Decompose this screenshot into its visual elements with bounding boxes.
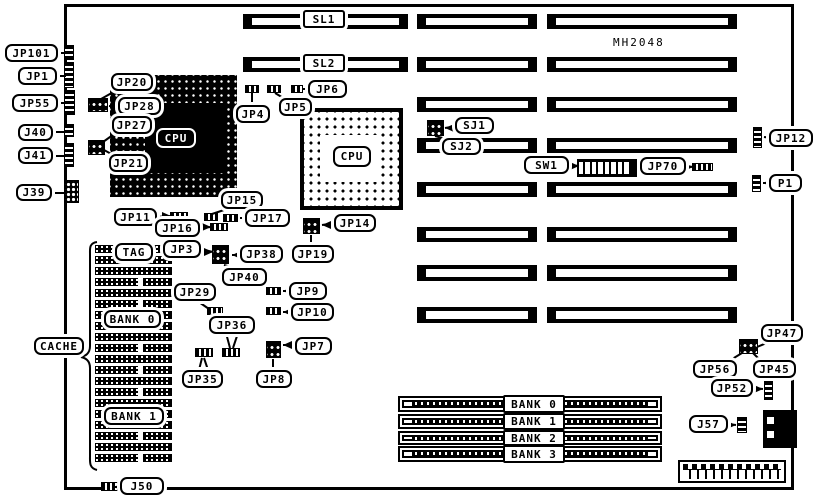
jp9-label: JP9 (289, 282, 327, 300)
jp10-jumper (266, 307, 281, 315)
jp56-label: JP56 (693, 360, 737, 378)
jp3-label: JP3 (163, 240, 201, 258)
jp7-label: JP7 (295, 337, 332, 355)
jp38-label: JP38 (240, 245, 283, 263)
slot-row8-right (547, 307, 737, 323)
jp12-label: JP12 (769, 129, 813, 147)
jp5-jumper (267, 85, 281, 93)
jp16-label: JP16 (155, 219, 200, 237)
slot-row8-mid (417, 307, 537, 323)
cache-chip-row (95, 399, 172, 407)
jp70-jumper (692, 163, 713, 171)
simm-latch-icon (646, 418, 658, 425)
jp15-jumper (204, 213, 218, 221)
simm-latch-icon (646, 450, 658, 458)
slot-row3-right (547, 97, 737, 112)
j50-jumper (101, 482, 118, 491)
sj1-label: SJ1 (455, 117, 494, 134)
jp47-label: JP47 (761, 324, 803, 342)
cache-chip-row (95, 432, 172, 440)
simm-latch-icon (402, 400, 414, 408)
jp27-jp21-jumper (88, 140, 105, 155)
jp4-jumper (245, 85, 259, 93)
cache-chip-row (95, 344, 172, 352)
jp9-jumper (266, 287, 281, 295)
cache-chip-row (95, 388, 172, 396)
cache-chip-rows (95, 245, 172, 469)
simm-bank0-label: BANK 0 (503, 395, 565, 413)
jp55-label: JP55 (12, 94, 58, 112)
jp17-label: JP17 (245, 209, 290, 227)
cache-bank0-label: BANK 0 (104, 310, 161, 328)
sl1-label: SL1 (303, 10, 345, 28)
jp101-connector (64, 45, 74, 60)
cpu-socket-1-label: CPU (156, 128, 196, 148)
jp1-connector (64, 62, 74, 88)
jp47-jp56-jp45-jumper (739, 339, 758, 354)
jp45-label: JP45 (753, 360, 796, 378)
cpu-socket-2-label: CPU (333, 146, 371, 167)
slot-row3-mid (417, 97, 537, 112)
jp40-label: JP40 (222, 268, 267, 286)
jp101-label: JP101 (5, 44, 58, 62)
jp16-jumper (210, 223, 228, 231)
sj1-sj2-jumper (427, 120, 444, 136)
jp3-jp38-jp40-jumper (212, 245, 229, 264)
simm-socket-bank0: BANK 0 (398, 396, 662, 412)
jp6-label: JP6 (308, 80, 347, 98)
slot-row4-right (547, 138, 737, 153)
cache-chip-row (95, 355, 172, 363)
simm-socket-bank1: BANK 1 (398, 414, 662, 429)
jp10-label: JP10 (291, 303, 334, 321)
jp8-label: JP8 (256, 370, 292, 388)
cache-chip-row (95, 366, 172, 374)
jp1-label: JP1 (18, 67, 57, 85)
j40-label: J40 (18, 124, 53, 141)
jp6-jumper (291, 85, 303, 93)
j39-label: J39 (16, 184, 52, 201)
jp36-jumper (222, 348, 240, 357)
cache-chip-row (95, 289, 172, 297)
motherboard-diagram: MH2048 CPU CPU BANK 0 BANK 1 BANK 2 (0, 0, 819, 502)
simm-latch-icon (646, 435, 658, 441)
jp20-label: JP20 (111, 73, 153, 91)
slot-row2-mid (417, 57, 537, 72)
cache-chip-row (95, 454, 172, 462)
power-connector (678, 460, 786, 483)
sw1-label: SW1 (524, 156, 569, 174)
p1-label: P1 (769, 174, 802, 192)
jp14-label: JP14 (334, 214, 376, 232)
simm-bank2-label: BANK 2 (503, 430, 565, 446)
sj2-label: SJ2 (442, 138, 481, 155)
slot-row7-right (547, 265, 737, 281)
jp35-jumper (195, 348, 213, 357)
jp15-label: JP15 (221, 191, 263, 209)
j41-connector (64, 143, 74, 167)
cache-chip-row (95, 377, 172, 385)
simm-latch-icon (402, 435, 414, 441)
jp12-connector (753, 127, 762, 148)
simm-latch-icon (402, 418, 414, 425)
cache-label: CACHE (34, 337, 84, 355)
slot-row6-mid (417, 227, 537, 242)
j50-label: J50 (120, 477, 164, 495)
slot-row2-right (547, 57, 737, 72)
board-model-text: MH2048 (613, 36, 665, 49)
jp36-label: JP36 (209, 316, 255, 334)
jp7-jp8-jumper (266, 341, 281, 358)
simm-latch-icon (402, 450, 414, 458)
slot-row1-mid (417, 14, 537, 29)
cache-tag-label: TAG (115, 243, 153, 261)
j57-label: J57 (689, 415, 728, 433)
jp29-jumper (207, 307, 223, 315)
jp27-label: JP27 (112, 116, 152, 134)
cache-chip-row (95, 333, 172, 341)
j40-connector (64, 124, 74, 137)
jp5-label: JP5 (279, 98, 312, 116)
sl2-label: SL2 (303, 54, 345, 72)
slot-row5-mid (417, 182, 537, 197)
jp55-connector (64, 90, 75, 115)
jp14-jp19-jumper (303, 218, 320, 234)
cache-chip-row (95, 278, 172, 286)
jp52-jumper (764, 381, 773, 400)
keyboard-connector (763, 410, 797, 448)
slot-row5-right (547, 182, 737, 197)
j39-connector (64, 180, 79, 203)
cache-bank1-label: BANK 1 (104, 407, 164, 425)
sw1-dip-switch (577, 159, 637, 177)
jp20-jp28-jumper (88, 98, 108, 112)
j41-label: J41 (18, 147, 53, 164)
cache-chip-row (95, 300, 172, 308)
slot-row6-right (547, 227, 737, 242)
simm-latch-icon (646, 400, 658, 408)
jp29-label: JP29 (174, 283, 216, 301)
jp17-jumper (223, 214, 238, 222)
jp28-label: JP28 (118, 97, 161, 115)
simm-socket-bank2: BANK 2 (398, 431, 662, 445)
j57-jumper (737, 417, 747, 433)
jp19-label: JP19 (292, 245, 334, 263)
slot-row7-mid (417, 265, 537, 281)
jp35-label: JP35 (182, 370, 223, 388)
cache-chip-row (95, 267, 172, 275)
jp21-label: JP21 (109, 154, 148, 172)
cache-chip-row (95, 443, 172, 451)
simm-bank3-label: BANK 3 (503, 445, 565, 463)
slot-row1-right (547, 14, 737, 29)
jp52-label: JP52 (711, 379, 753, 397)
p1-connector (752, 175, 761, 192)
simm-socket-bank3: BANK 3 (398, 446, 662, 462)
jp4-label: JP4 (236, 105, 270, 123)
simm-bank1-label: BANK 1 (503, 413, 565, 430)
jp70-label: JP70 (640, 157, 686, 175)
jp11-label: JP11 (114, 208, 157, 226)
